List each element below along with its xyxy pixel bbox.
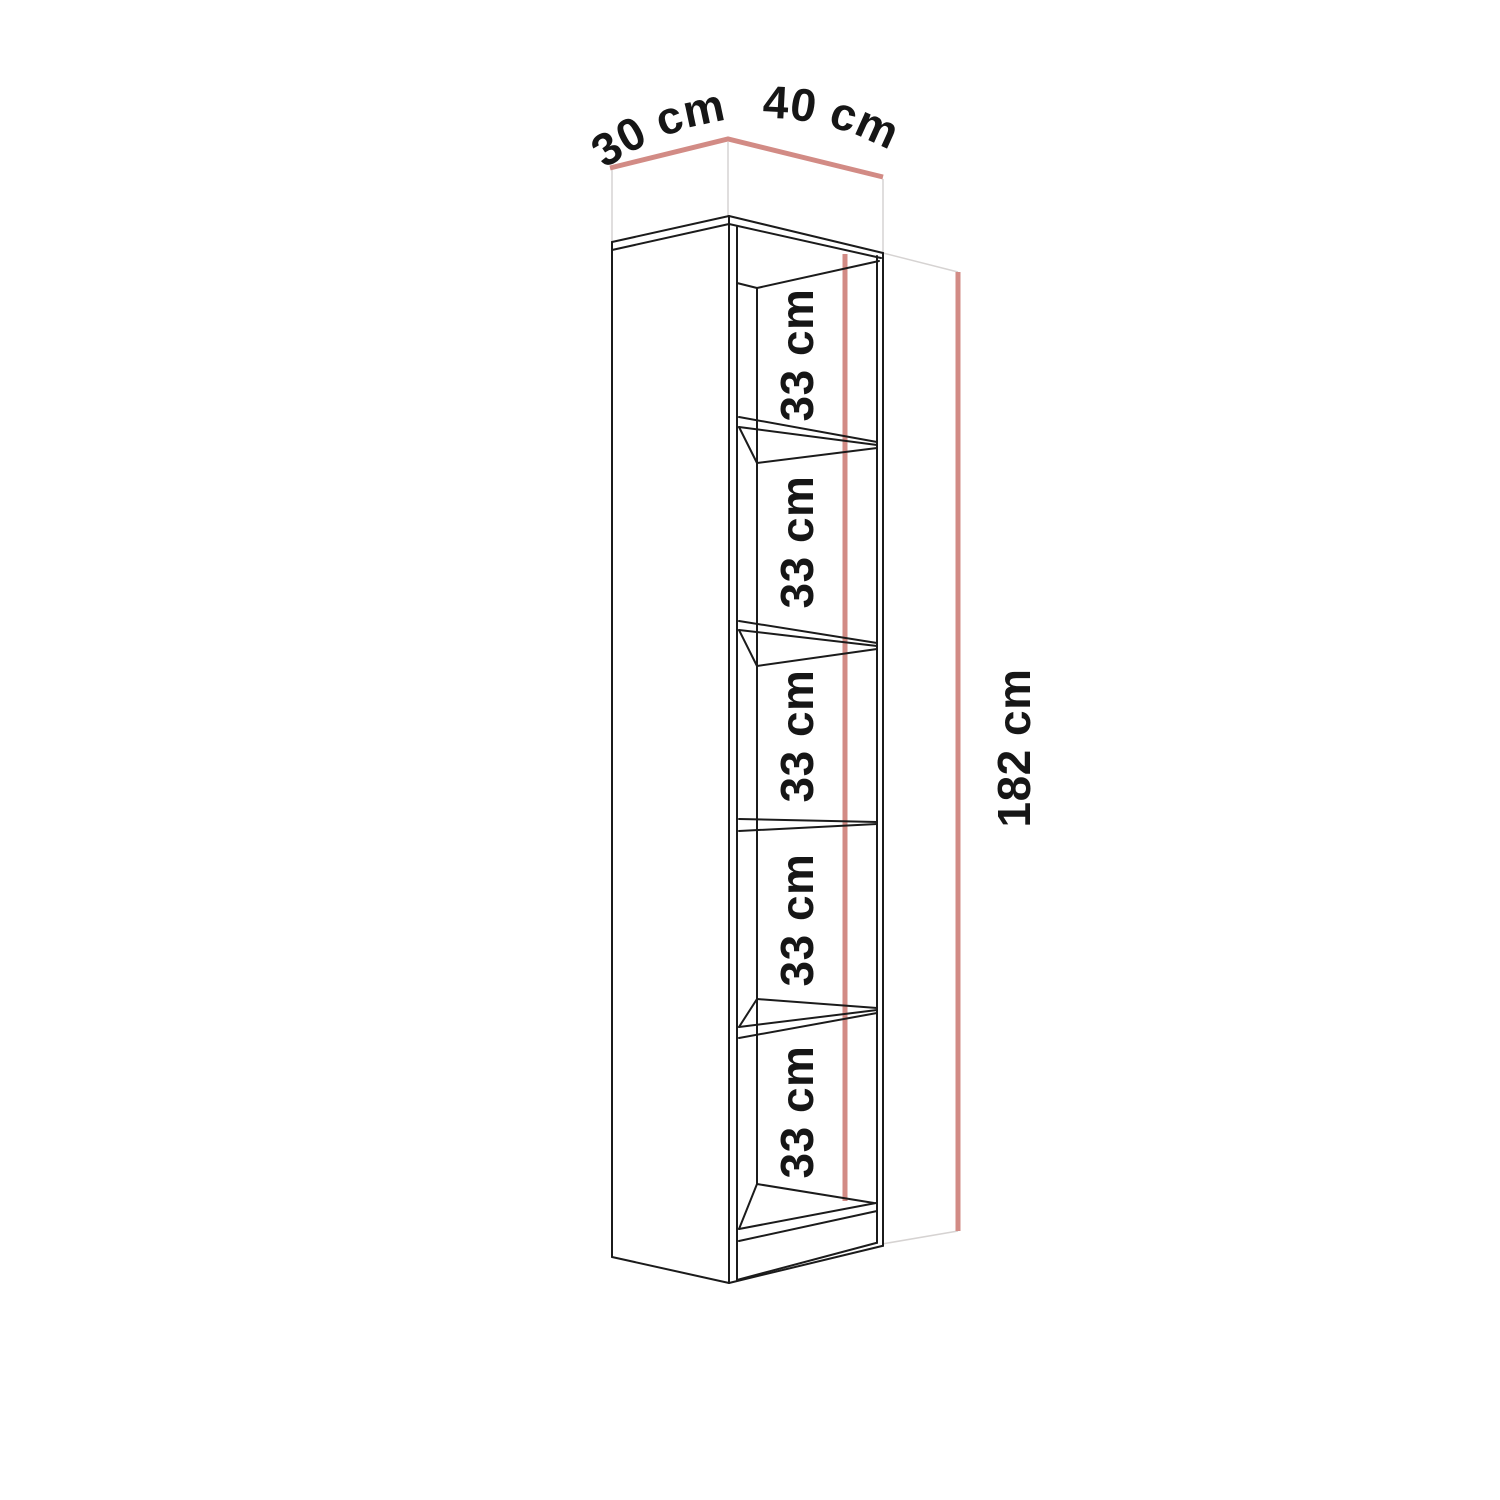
top-board-front-top-edge: [729, 216, 883, 253]
shelf-4-top-back-edge: [757, 999, 877, 1008]
shelf-2-underside-back-edge: [757, 649, 877, 666]
left-panel-top-inner-edge: [612, 224, 729, 250]
shelf-4-front-bottom-edge: [739, 1013, 877, 1038]
top-board-front-bottom-edge: [729, 224, 881, 258]
guide-height-top: [883, 253, 958, 272]
shelf-1: [739, 417, 877, 463]
shelf-1-underside-left-edge: [739, 427, 757, 463]
shelf-gap-label-1: 33 cm: [771, 289, 823, 422]
shelf-3: [739, 819, 877, 831]
shelf-4-top-left-edge: [739, 999, 757, 1027]
shelf-3-front-bottom-edge: [739, 824, 877, 831]
diagram-canvas: 30 cm 40 cm 182 cm 33 cm 33 cm 33 cm 33 …: [0, 0, 1500, 1500]
shelf-3-front-top-edge: [739, 819, 877, 822]
bookshelf-dimension-diagram: 30 cm 40 cm 182 cm 33 cm 33 cm 33 cm 33 …: [0, 0, 1500, 1500]
top-board-underside-left-edge: [737, 283, 757, 288]
floor-left-edge: [739, 1184, 757, 1229]
height-label: 182 cm: [988, 668, 1040, 827]
left-panel-top-outer-edge: [612, 216, 729, 242]
shelf-4: [739, 999, 877, 1038]
bottom-front-inner-edge: [737, 1243, 876, 1280]
shelf-gap-label-2: 33 cm: [771, 476, 823, 609]
bottom-front-outer-edge: [729, 1246, 882, 1283]
shelf-gap-label-3: 33 cm: [771, 670, 823, 803]
shelf-1-underside-back-edge: [757, 448, 877, 463]
width-label: 40 cm: [762, 76, 908, 160]
guide-height-bottom: [882, 1231, 958, 1244]
top-board-underside-back-edge: [757, 261, 879, 288]
floor-back-edge: [757, 1184, 874, 1203]
shelf-gap-label-4: 33 cm: [771, 854, 823, 987]
shelf-4-front-top-edge: [739, 1010, 877, 1027]
shelf-gap-label-5: 33 cm: [771, 1046, 823, 1179]
left-panel-bottom-edge: [612, 1257, 729, 1283]
bookshelf-outline: [612, 216, 883, 1283]
shelf-2: [739, 621, 877, 666]
depth-label: 30 cm: [582, 78, 729, 177]
shelf-2-underside-left-edge: [739, 630, 757, 666]
